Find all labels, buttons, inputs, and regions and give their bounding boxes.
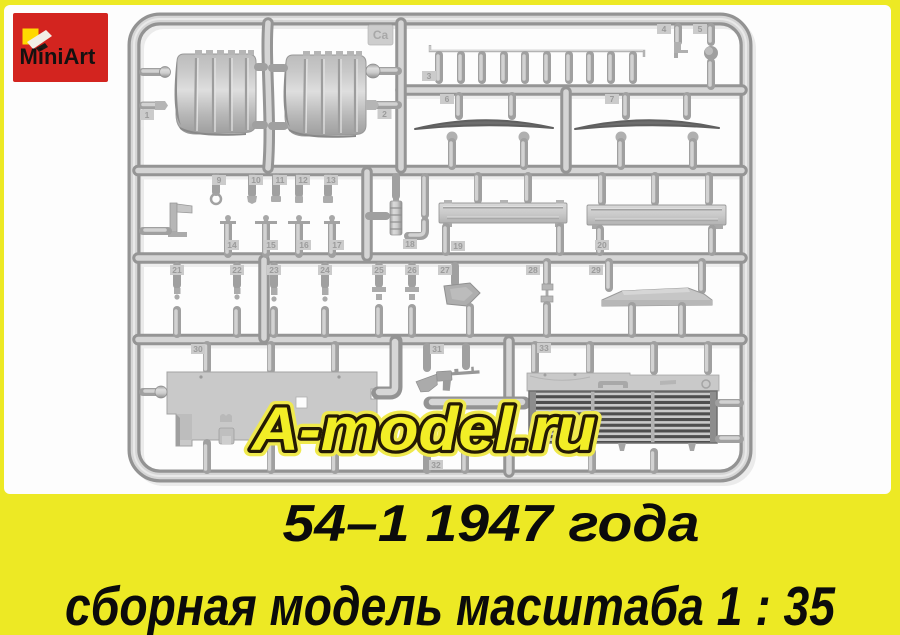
svg-text:23: 23 <box>269 265 279 275</box>
svg-text:5: 5 <box>698 24 703 34</box>
svg-text:19: 19 <box>453 241 463 251</box>
svg-text:31: 31 <box>432 344 442 354</box>
svg-text:14: 14 <box>227 240 237 250</box>
svg-text:16: 16 <box>299 240 309 250</box>
svg-text:29: 29 <box>591 265 601 275</box>
svg-text:2: 2 <box>382 109 387 119</box>
svg-text:10: 10 <box>251 175 261 185</box>
svg-text:25: 25 <box>374 265 384 275</box>
svg-text:A-model.ru: A-model.ru <box>250 395 596 463</box>
svg-text:9: 9 <box>217 175 222 185</box>
svg-text:11: 11 <box>276 175 285 185</box>
svg-text:MiniArt: MiniArt <box>20 44 96 69</box>
svg-text:13: 13 <box>326 175 336 185</box>
svg-text:26: 26 <box>407 265 417 275</box>
svg-text:15: 15 <box>266 240 276 250</box>
svg-text:30: 30 <box>193 344 203 354</box>
svg-text:12: 12 <box>298 175 308 185</box>
svg-text:22: 22 <box>232 265 242 275</box>
svg-text:27: 27 <box>440 265 450 275</box>
svg-text:17: 17 <box>332 240 342 250</box>
svg-text:6: 6 <box>445 94 450 104</box>
svg-text:3: 3 <box>427 71 432 81</box>
svg-text:20: 20 <box>597 240 607 250</box>
svg-text:24: 24 <box>320 265 330 275</box>
svg-text:1: 1 <box>145 110 150 120</box>
svg-text:Ca: Ca <box>373 28 389 42</box>
svg-text:33: 33 <box>539 343 549 353</box>
svg-text:7: 7 <box>610 94 615 104</box>
svg-text:28: 28 <box>528 265 538 275</box>
svg-text:сборная модель масштаба 1 : 35: сборная модель масштаба 1 : 35 <box>65 575 836 635</box>
svg-text:4: 4 <box>662 24 667 34</box>
svg-text:21: 21 <box>172 265 182 275</box>
svg-text:18: 18 <box>405 239 415 249</box>
svg-text:54–1 1947 года: 54–1 1947 года <box>283 495 700 553</box>
